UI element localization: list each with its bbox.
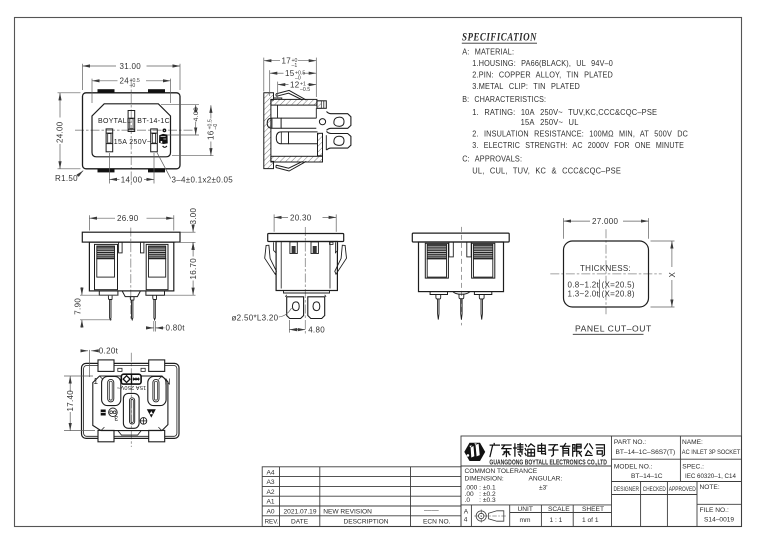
svg-text:0.20t: 0.20t	[99, 347, 119, 356]
svg-text:C: APPROVALS:: C: APPROVALS:	[462, 155, 522, 164]
svg-text:17.40: 17.40	[66, 390, 75, 412]
svg-text:BOYTALL: BOYTALL	[98, 118, 131, 125]
svg-text:DIMENSION:: DIMENSION:	[465, 475, 504, 482]
svg-text:1.3~2.0t: 1.3~2.0t	[568, 289, 600, 298]
svg-text:A2: A2	[267, 489, 275, 496]
svg-text:26.90: 26.90	[117, 214, 139, 223]
svg-text:IEC 60320–1, C14: IEC 60320–1, C14	[685, 473, 736, 480]
svg-text:15A 250V~: 15A 250V~	[116, 384, 146, 390]
svg-text:A3: A3	[267, 479, 275, 486]
svg-text:17: 17	[282, 57, 292, 66]
svg-text:12: 12	[290, 81, 300, 90]
svg-text:NEW REVISION: NEW REVISION	[323, 509, 372, 516]
svg-text:A: MATERIAL:: A: MATERIAL:	[462, 48, 514, 57]
svg-text:PANEL CUT–OUT: PANEL CUT–OUT	[575, 324, 652, 334]
svg-text:NAME:: NAME:	[682, 439, 703, 446]
svg-text:2.PIN: COPPER ALLOY, TIN P: 2.PIN: COPPER ALLOY, TIN PLATED	[472, 71, 613, 80]
svg-text:1 of 1: 1 of 1	[582, 517, 599, 524]
svg-text:3.METAL CLIP: TIN PLATED: 3.METAL CLIP: TIN PLATED	[472, 82, 580, 91]
svg-text:1: 1	[94, 377, 99, 386]
svg-text:4.80: 4.80	[308, 325, 325, 334]
svg-text:APPROVED: APPROVED	[669, 486, 696, 493]
svg-text:A: A	[464, 509, 469, 516]
svg-text:1. RATING: 10A 250V~ TUV,K: 1. RATING: 10A 250V~ TUV,KC,CCC&CQC–PSE	[472, 108, 657, 117]
svg-text:2. INSULATION RESISTANCE: 1: 2. INSULATION RESISTANCE: 100MΩ MIN, AT …	[472, 130, 688, 139]
svg-text:GUANGDONG BOYTALL ELECTRONICS: GUANGDONG BOYTALL ELECTRONICS CO.,LTD	[489, 460, 607, 467]
svg-text:SPEC.:: SPEC.:	[682, 463, 704, 470]
svg-text:SPECIFICATION: SPECIFICATION	[462, 32, 537, 44]
svg-text:FILE NO.:: FILE NO.:	[700, 507, 729, 514]
svg-text:X: X	[668, 272, 677, 278]
svg-text:CHECKED: CHECKED	[643, 486, 666, 493]
svg-text:2021.07.19: 2021.07.19	[284, 509, 317, 516]
svg-text:SHEET: SHEET	[582, 506, 604, 513]
svg-text:COMMON TOLERANCE: COMMON TOLERANCE	[465, 468, 538, 475]
svg-text:14.00: 14.00	[121, 175, 143, 184]
svg-text:AC INLET 3P SOCKET: AC INLET 3P SOCKET	[682, 449, 741, 456]
svg-text:ANGULAR:: ANGULAR:	[529, 475, 563, 482]
svg-text:27.000: 27.000	[592, 217, 619, 226]
svg-text:DESIGNER: DESIGNER	[614, 486, 640, 493]
svg-text:A0: A0	[267, 509, 275, 516]
svg-text:20.30: 20.30	[290, 213, 312, 222]
svg-text:ø2.50*L3.20: ø2.50*L3.20	[232, 313, 279, 322]
svg-text:SCALE: SCALE	[548, 506, 570, 513]
svg-text:24: 24	[120, 77, 130, 86]
svg-text:24.00: 24.00	[55, 121, 64, 143]
svg-text:ECN NO.: ECN NO.	[423, 518, 451, 525]
svg-text:A4: A4	[267, 469, 275, 476]
svg-text:UL, CUL, TUV, KC & CCC&CQ: UL, CUL, TUV, KC & CCC&CQC–PSE	[472, 167, 621, 176]
svg-text:.0 : ±0.3: .0 : ±0.3	[465, 497, 496, 504]
svg-text:3–4±0.1x2±0.05: 3–4±0.1x2±0.05	[172, 175, 234, 184]
svg-text:16: 16	[207, 130, 216, 140]
svg-text:–0.5: –0.5	[300, 87, 310, 93]
svg-text:DATE: DATE	[291, 518, 309, 525]
svg-text:1 : 1: 1 : 1	[550, 517, 563, 524]
svg-text:––––: ––––	[424, 508, 439, 515]
svg-text:N: N	[165, 378, 171, 387]
svg-text:DESCRIPTION: DESCRIPTION	[344, 518, 389, 525]
svg-text:0.8~1.2t: 0.8~1.2t	[568, 280, 600, 289]
svg-text:BT-14-1C: BT-14-1C	[137, 118, 170, 125]
svg-text:–0: –0	[130, 83, 136, 89]
svg-text:B: CHARACTERISTICS:: B: CHARACTERISTICS:	[462, 95, 546, 104]
svg-text:15A 250V~: 15A 250V~	[114, 139, 152, 146]
svg-text:REV.: REV.	[265, 518, 279, 525]
svg-text:16.70: 16.70	[189, 258, 198, 280]
svg-text:mm: mm	[520, 517, 531, 524]
svg-text:(X=20.8): (X=20.8)	[602, 289, 635, 298]
svg-text:15A 250V~ UL: 15A 250V~ UL	[521, 118, 579, 127]
svg-text:R1.50: R1.50	[55, 174, 78, 183]
svg-text:31.00: 31.00	[120, 62, 142, 71]
svg-text:THICKNESS:: THICKNESS:	[580, 264, 631, 273]
svg-text:NOTE:: NOTE:	[700, 484, 720, 491]
svg-text:BT–14–1C: BT–14–1C	[631, 473, 663, 480]
svg-text:S14–0019: S14–0019	[704, 517, 734, 524]
svg-text:7.90: 7.90	[73, 298, 82, 315]
svg-text:MODEL NO.:: MODEL NO.:	[614, 463, 653, 470]
svg-text:3.00: 3.00	[189, 207, 198, 224]
svg-text:4.00: 4.00	[193, 107, 200, 121]
svg-text:–0: –0	[213, 124, 219, 130]
svg-text:3. ELECTRIC STRENGTH: AC 2: 3. ELECTRIC STRENGTH: AC 2000V FOR ONE M…	[472, 141, 684, 150]
svg-text:0.80t: 0.80t	[166, 324, 186, 333]
svg-text:4: 4	[464, 517, 468, 524]
svg-text:BT–14–1C–S6S7(T): BT–14–1C–S6S7(T)	[616, 449, 676, 456]
svg-text:UNIT: UNIT	[518, 506, 533, 513]
svg-text:1.HOUSING: PA66(BLACK), UL: 1.HOUSING: PA66(BLACK), UL 94V–0	[472, 59, 613, 68]
svg-text:–1: –1	[292, 63, 298, 69]
svg-text:(X=20.5): (X=20.5)	[602, 280, 635, 289]
svg-text:±3': ±3'	[539, 485, 548, 492]
svg-text:15: 15	[285, 69, 295, 78]
svg-text:PART NO.:: PART NO.:	[614, 439, 646, 446]
svg-text:A1: A1	[267, 499, 275, 506]
